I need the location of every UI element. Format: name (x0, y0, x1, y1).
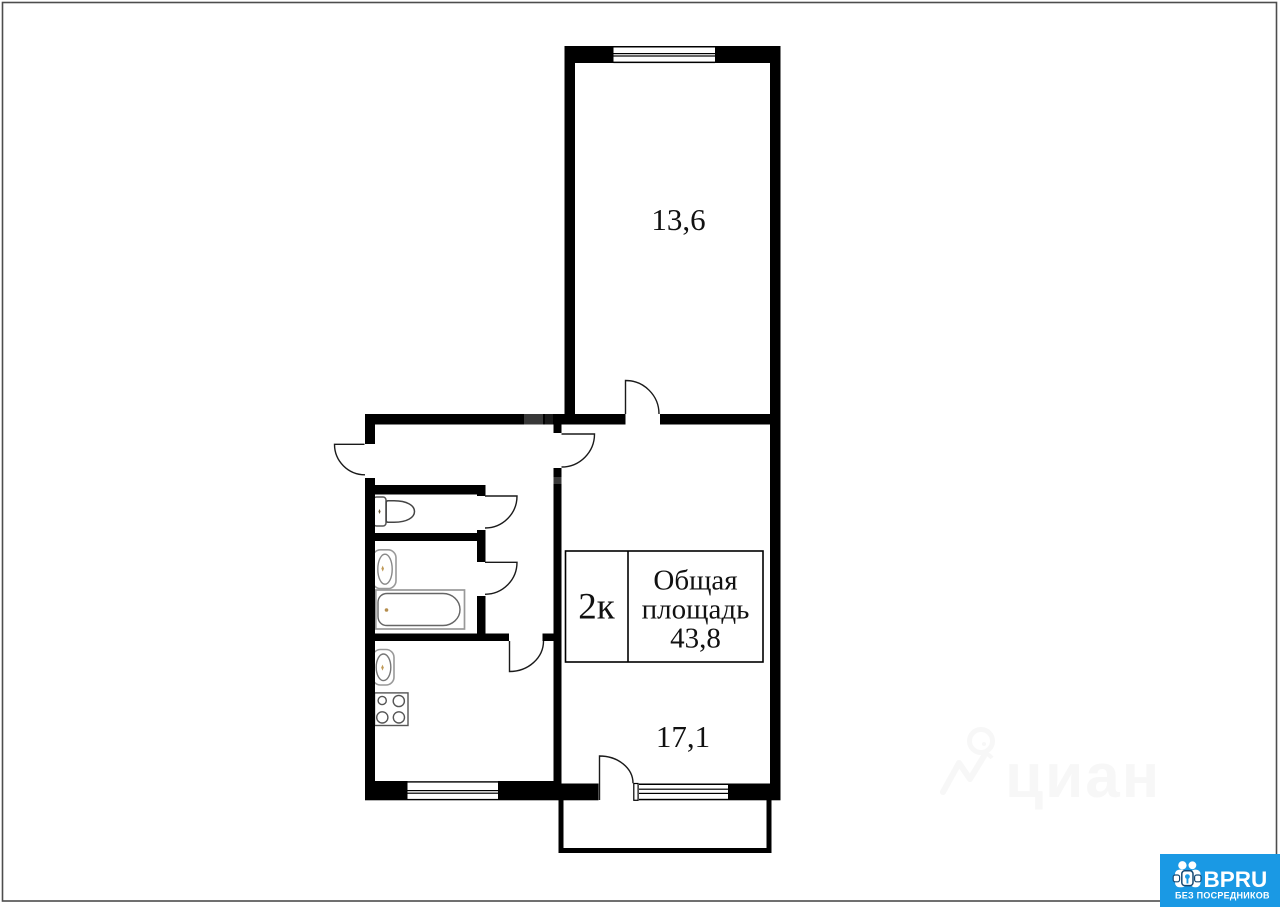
svg-text:площадь: площадь (642, 594, 750, 626)
svg-text:43,8: 43,8 (670, 623, 721, 655)
svg-text:13,6: 13,6 (651, 202, 705, 237)
svg-text:2к: 2к (578, 587, 616, 628)
svg-text:циан: циан (1005, 742, 1161, 811)
svg-text:BPRU: BPRU (1204, 867, 1268, 892)
svg-text:БЕЗ ПОСРЕДНИКОВ: БЕЗ ПОСРЕДНИКОВ (1175, 890, 1270, 900)
svg-text:17,1: 17,1 (656, 719, 710, 754)
svg-text:Общая: Общая (653, 565, 737, 597)
